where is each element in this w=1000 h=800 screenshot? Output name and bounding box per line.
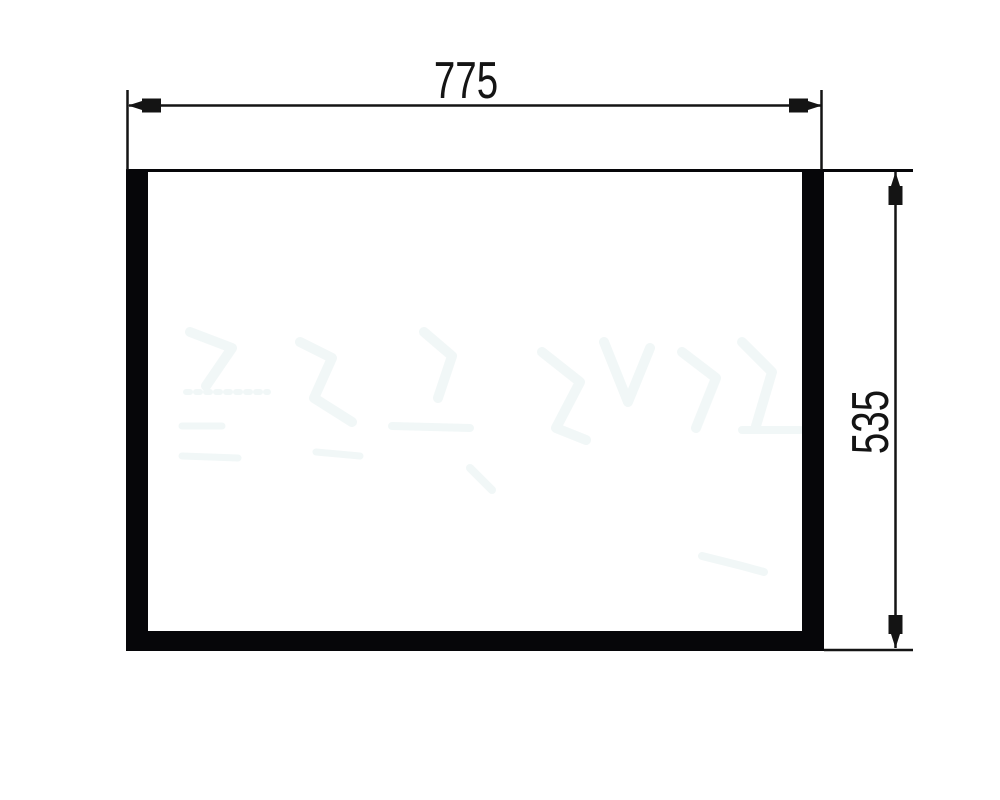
watermark-stroke bbox=[542, 352, 586, 440]
watermark-stroke bbox=[742, 342, 772, 426]
watermark-stroke bbox=[604, 342, 650, 402]
arrowhead-up-icon bbox=[889, 172, 903, 205]
watermark-stroke bbox=[424, 332, 452, 398]
watermark-stroke bbox=[702, 556, 764, 572]
panel-left-border bbox=[126, 170, 148, 651]
watermark-stroke bbox=[682, 352, 716, 428]
watermark-stroke bbox=[300, 342, 352, 422]
watermark-stroke bbox=[470, 468, 492, 490]
width-dimension-label: 775 bbox=[434, 55, 498, 107]
watermark-stroke bbox=[182, 456, 238, 458]
watermark-stroke bbox=[316, 452, 360, 456]
drawing-canvas: 775 535 bbox=[0, 0, 1000, 800]
panel-top-edge bbox=[126, 169, 913, 172]
arrowhead-left-icon bbox=[128, 99, 161, 113]
arrowhead-right-icon bbox=[789, 99, 822, 113]
height-dimension-label: 535 bbox=[845, 390, 897, 454]
watermark-stroke bbox=[392, 426, 470, 428]
glass-panel bbox=[126, 169, 913, 651]
panel-bottom-border bbox=[126, 631, 824, 651]
watermark-stroke bbox=[190, 332, 232, 386]
panel-right-border bbox=[802, 170, 824, 651]
arrowhead-down-icon bbox=[889, 615, 903, 648]
watermark bbox=[182, 332, 800, 572]
